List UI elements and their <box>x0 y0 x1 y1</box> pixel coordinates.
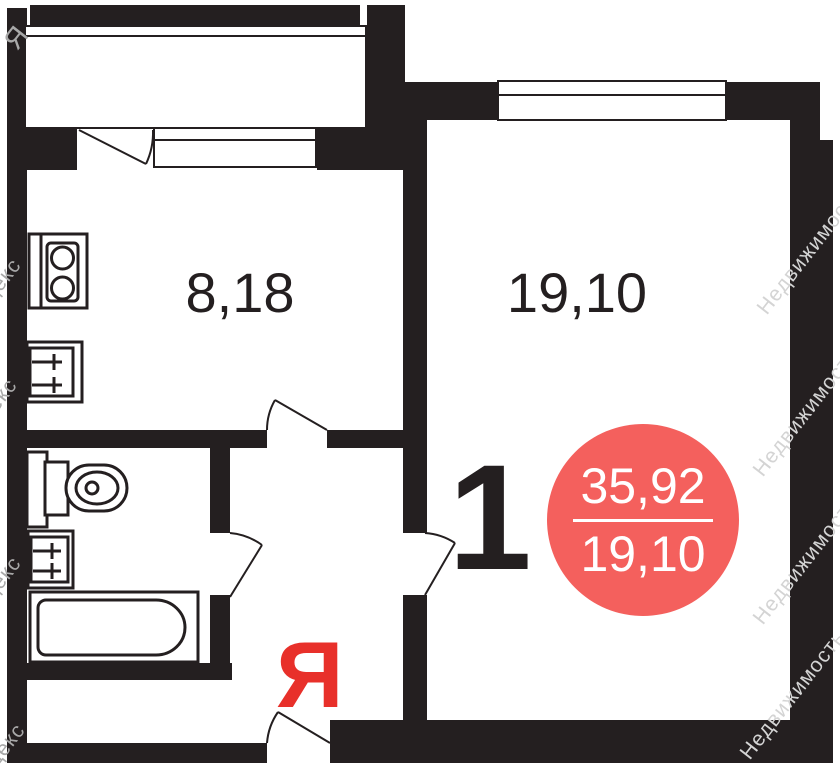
bathtub-fixture <box>30 592 198 662</box>
kitchen-area-label: 8,18 <box>140 264 340 323</box>
toilet-fixture <box>27 452 127 527</box>
balcony-door <box>79 130 153 164</box>
room-number: 1 <box>445 442 535 592</box>
badge-total-area: 35,92 <box>580 461 705 512</box>
badge-divider <box>573 519 713 522</box>
yandex-logo: Я <box>276 628 344 722</box>
kitchen-sink-fixture <box>27 342 82 402</box>
area-badge: 35,92 19,10 <box>547 424 739 616</box>
fixtures-layer <box>0 0 840 768</box>
living-room-area-label: 19,10 <box>477 264 677 323</box>
bathroom-sink-fixture <box>28 531 73 588</box>
kitchen-door <box>267 400 327 430</box>
badge-living-area: 19,10 <box>580 529 705 580</box>
bathroom-door <box>230 533 262 597</box>
floor-plan: 8,18 19,10 1 35,92 19,10 Я Я Яндекс Янде… <box>0 0 840 768</box>
stove-fixture <box>29 234 87 308</box>
